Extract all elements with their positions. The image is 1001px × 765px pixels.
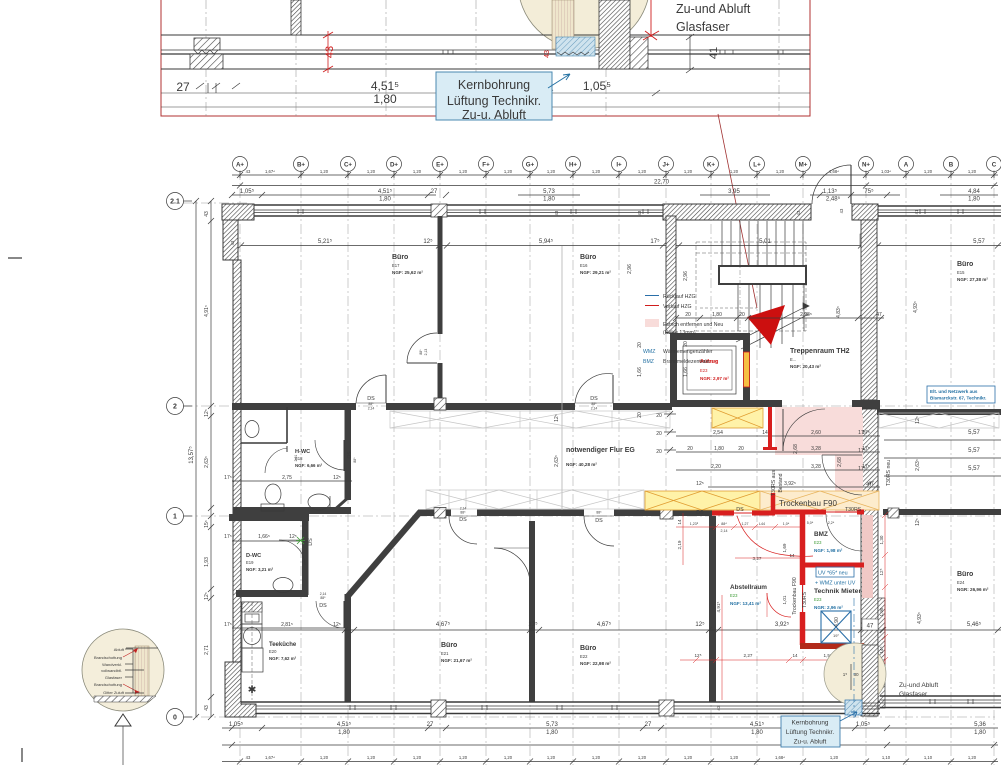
svg-text:Büro: Büro	[957, 571, 973, 578]
svg-text:DS: DS	[595, 518, 603, 524]
svg-text:17⁵: 17⁵	[650, 238, 660, 245]
svg-text:E20: E20	[269, 649, 277, 654]
svg-text:20: 20	[738, 446, 744, 452]
svg-text:5,57: 5,57	[968, 430, 980, 436]
svg-text:88⁴: 88⁴	[721, 522, 727, 526]
svg-text:17⁵: 17⁵	[224, 622, 232, 628]
svg-text:DS: DS	[696, 510, 704, 516]
svg-text:1,20: 1,20	[638, 169, 647, 174]
svg-text:88⁵: 88⁵	[368, 402, 374, 406]
svg-text:43: 43	[716, 705, 721, 711]
svg-text:1,20: 1,20	[459, 169, 468, 174]
svg-text:notwendiger Flur EG: notwendiger Flur EG	[566, 447, 635, 454]
svg-text:Gitter Zuluft: Gitter Zuluft	[103, 690, 125, 695]
svg-text:12⁵: 12⁵	[204, 592, 210, 600]
svg-text:14: 14	[677, 519, 682, 525]
svg-text:NGF: 1,98 m²: NGF: 1,98 m²	[814, 548, 843, 553]
svg-text:17⁵: 17⁵	[858, 448, 866, 454]
svg-text:1,20: 1,20	[320, 755, 329, 760]
svg-text:Bestand: Bestand	[778, 473, 784, 492]
svg-text:1,80: 1,80	[373, 92, 397, 106]
svg-text:E24: E24	[957, 580, 965, 585]
svg-text:Büro: Büro	[392, 254, 408, 261]
svg-text:12⁵: 12⁵	[915, 518, 921, 526]
svg-text:1,80: 1,80	[546, 730, 558, 736]
svg-text:1,05⁵: 1,05⁵	[229, 721, 244, 728]
svg-text:C: C	[992, 162, 997, 169]
svg-text:0: 0	[173, 715, 177, 722]
svg-text:2,63⁵: 2,63⁵	[915, 459, 921, 471]
svg-text:3,92⁵: 3,92⁵	[775, 621, 790, 628]
svg-text:vollwandbtl.: vollwandbtl.	[101, 668, 122, 673]
svg-text:14: 14	[789, 553, 795, 558]
svg-text:2,14: 2,14	[460, 507, 467, 511]
svg-text:1,80: 1,80	[379, 197, 391, 203]
svg-text:1,68⁴: 1,68⁴	[775, 755, 785, 760]
svg-text:2,54: 2,54	[713, 430, 723, 436]
svg-text:1,80: 1,80	[714, 446, 724, 452]
svg-text:1,67⁴: 1,67⁴	[265, 169, 275, 174]
svg-text:Vorlauf HZG: Vorlauf HZG	[663, 304, 692, 310]
svg-text:NGF: 21,67 m²: NGF: 21,67 m²	[441, 658, 472, 663]
svg-text:DS: DS	[319, 603, 327, 609]
svg-text:47: 47	[867, 624, 874, 630]
svg-text:2,60: 2,60	[811, 430, 821, 436]
svg-text:47: 47	[866, 482, 872, 488]
svg-text:N+: N+	[862, 162, 870, 169]
svg-text:H-WC: H-WC	[295, 449, 310, 455]
svg-text:J+: J+	[662, 162, 669, 169]
svg-text:20: 20	[637, 412, 643, 418]
svg-text:(Hülse 13mm): (Hülse 13mm)	[663, 330, 696, 336]
svg-text:20: 20	[656, 449, 662, 455]
svg-text:Brandmeldezentrale: Brandmeldezentrale	[663, 359, 710, 365]
svg-text:2,75: 2,75	[282, 475, 292, 481]
svg-text:12⁵: 12⁵	[554, 414, 560, 422]
svg-text:27: 27	[431, 189, 438, 195]
svg-text:4,84: 4,84	[968, 189, 980, 195]
svg-text:NGF: 22,98 m²: NGF: 22,98 m²	[580, 661, 611, 666]
svg-text:A+: A+	[236, 162, 244, 169]
svg-text:43: 43	[230, 240, 235, 245]
svg-text:4,91⁵: 4,91⁵	[204, 305, 210, 317]
svg-text:1,0⁴: 1,0⁴	[783, 522, 790, 526]
svg-text:Büro: Büro	[580, 254, 596, 261]
svg-text:2,19: 2,19	[677, 540, 682, 549]
svg-text:1,20: 1,20	[830, 755, 839, 760]
svg-text:12⁵: 12⁵	[528, 621, 538, 628]
svg-text:2,14: 2,14	[368, 407, 375, 411]
svg-text:1,80: 1,80	[338, 730, 350, 736]
svg-text:43: 43	[839, 208, 844, 213]
svg-text:43: 43	[204, 705, 210, 711]
svg-text:14: 14	[792, 653, 798, 658]
svg-text:✱: ✱	[248, 684, 257, 696]
svg-text:BMZ: BMZ	[814, 531, 828, 538]
svg-text:3,28: 3,28	[811, 446, 821, 452]
svg-text:Technik Mieter: Technik Mieter	[814, 588, 861, 595]
svg-text:E+: E+	[436, 162, 444, 169]
svg-text:1,93: 1,93	[204, 557, 210, 567]
svg-text:5,57: 5,57	[968, 466, 980, 472]
svg-text:1,20: 1,20	[547, 169, 556, 174]
svg-text:NGF: 6,66 m²: NGF: 6,66 m²	[295, 463, 323, 468]
svg-text:Abluft: Abluft	[114, 647, 125, 652]
svg-text:1,20: 1,20	[459, 755, 468, 760]
svg-text:1,05⁵: 1,05⁵	[240, 188, 255, 195]
svg-text:17⁵: 17⁵	[858, 466, 866, 472]
svg-text:1,80: 1,80	[974, 730, 986, 736]
svg-text:12⁵: 12⁵	[333, 622, 341, 628]
svg-text:Glasfaser: Glasfaser	[899, 691, 928, 698]
svg-text:Zu-u. Abluft: Zu-u. Abluft	[794, 739, 827, 746]
svg-text:B: B	[949, 162, 954, 169]
svg-text:88⁵: 88⁵	[353, 457, 357, 463]
svg-text:1,66: 1,66	[683, 367, 689, 377]
svg-text:2,01: 2,01	[294, 455, 298, 462]
svg-text:20: 20	[683, 341, 689, 347]
svg-text:17⁵: 17⁵	[224, 534, 232, 540]
svg-text:A: A	[904, 162, 909, 169]
svg-text:NGR: 2,96 m²: NGR: 2,96 m²	[814, 605, 843, 610]
svg-text:5,57: 5,57	[968, 448, 980, 454]
svg-text:NGF: 27,38 m²: NGF: 27,38 m²	[957, 277, 988, 282]
svg-text:3,95: 3,95	[728, 189, 740, 195]
svg-text:4,67⁵: 4,67⁵	[597, 621, 612, 628]
svg-text:1,20: 1,20	[592, 169, 601, 174]
svg-text:Rücklauf HZG: Rücklauf HZG	[663, 294, 696, 300]
svg-text:WMZ: WMZ	[643, 349, 655, 355]
svg-text:3,27: 3,27	[753, 556, 762, 561]
svg-text:27: 27	[427, 722, 434, 728]
svg-text:DS: DS	[736, 507, 744, 513]
svg-text:E22: E22	[580, 654, 588, 659]
svg-text:T30RS: T30RS	[802, 591, 808, 608]
svg-text:12⁵: 12⁵	[915, 416, 921, 424]
svg-text:27: 27	[176, 80, 190, 94]
svg-text:1⁵: 1⁵	[843, 672, 848, 677]
svg-text:41: 41	[708, 47, 720, 59]
svg-text:Teeküche: Teeküche	[269, 642, 297, 648]
svg-text:1,01: 1,01	[782, 595, 787, 604]
svg-text:2,20: 2,20	[711, 464, 721, 470]
svg-text:20: 20	[656, 413, 662, 419]
svg-text:K+: K+	[707, 162, 715, 169]
svg-text:43: 43	[554, 210, 559, 215]
svg-text:E21: E21	[441, 651, 449, 656]
svg-text:Estrich entfernen und Neu: Estrich entfernen und Neu	[663, 322, 723, 328]
svg-text:1,80: 1,80	[751, 730, 763, 736]
svg-text:1,20: 1,20	[367, 169, 376, 174]
svg-text:Lüftung Technikr.: Lüftung Technikr.	[786, 729, 834, 736]
svg-text:4,90: 4,90	[834, 617, 840, 627]
svg-text:Elt. und Netzwerk aus: Elt. und Netzwerk aus	[930, 389, 978, 394]
svg-text:Wandverkl.: Wandverkl.	[102, 662, 122, 667]
svg-text:43: 43	[544, 50, 551, 58]
svg-text:1,20: 1,20	[730, 169, 739, 174]
svg-text:5,36: 5,36	[974, 722, 986, 728]
svg-text:12⁵: 12⁵	[696, 481, 704, 487]
svg-text:E19: E19	[246, 560, 254, 565]
svg-text:B+: B+	[297, 162, 305, 169]
svg-text:2,98⁵: 2,98⁵	[800, 312, 812, 318]
svg-text:1,23⁵: 1,23⁵	[690, 522, 699, 526]
svg-text:1,20: 1,20	[968, 169, 977, 174]
svg-text:NGF: 20,43 m²: NGF: 20,43 m²	[790, 364, 821, 369]
svg-text:14⁵: 14⁵	[879, 646, 884, 653]
svg-text:88⁵: 88⁵	[596, 511, 602, 515]
svg-text:1,80: 1,80	[543, 197, 555, 203]
svg-text:20: 20	[656, 431, 662, 437]
svg-text:Brandschottung: Brandschottung	[94, 682, 122, 687]
svg-text:17⁵: 17⁵	[224, 475, 232, 481]
svg-text:1: 1	[173, 514, 177, 521]
svg-text:12⁵: 12⁵	[695, 621, 705, 628]
svg-text:1,10: 1,10	[882, 755, 891, 760]
svg-text:2,96: 2,96	[627, 264, 633, 274]
svg-text:4,51⁵: 4,51⁵	[378, 188, 393, 195]
svg-text:Brandschottung: Brandschottung	[94, 655, 122, 660]
svg-text:Wärmemengenzähler: Wärmemengenzähler	[663, 349, 713, 355]
svg-text:22,70: 22,70	[654, 180, 670, 186]
svg-text:T30RS aus: T30RS aus	[771, 470, 777, 496]
svg-text:1,20: 1,20	[592, 755, 601, 760]
svg-text:G+: G+	[526, 162, 535, 169]
svg-text:2,48⁵: 2,48⁵	[826, 196, 841, 203]
svg-text:12⁵: 12⁵	[333, 475, 341, 481]
svg-text:Treppenraum TH2: Treppenraum TH2	[790, 348, 850, 355]
svg-text:1,20: 1,20	[504, 169, 513, 174]
svg-text:1,20: 1,20	[638, 755, 647, 760]
svg-text:2,96: 2,96	[683, 271, 689, 281]
svg-text:E15: E15	[957, 270, 965, 275]
svg-text:1,20: 1,20	[547, 755, 556, 760]
svg-text:1,20: 1,20	[730, 755, 739, 760]
svg-text:+ WMZ unter UV: + WMZ unter UV	[815, 581, 856, 587]
svg-text:88⁵: 88⁵	[320, 596, 326, 600]
svg-text:4,91⁵: 4,91⁵	[716, 601, 721, 612]
svg-text:1,20: 1,20	[413, 169, 422, 174]
svg-text:2,68: 2,68	[793, 444, 799, 454]
svg-text:E23: E23	[700, 368, 708, 373]
svg-text:1,20: 1,20	[504, 755, 513, 760]
svg-text:19°: 19°	[833, 633, 839, 638]
svg-text:Glasfaser: Glasfaser	[105, 675, 123, 680]
svg-text:DS: DS	[308, 538, 314, 546]
svg-text:NGF: 7,62 m²: NGF: 7,62 m²	[269, 656, 297, 661]
svg-text:4,83⁵: 4,83⁵	[836, 306, 842, 318]
svg-text:E23: E23	[814, 597, 822, 602]
svg-text:88⁵: 88⁵	[419, 349, 423, 355]
svg-text:43: 43	[246, 169, 251, 174]
svg-text:1,20: 1,20	[924, 169, 933, 174]
svg-text:DS: DS	[459, 517, 467, 523]
svg-text:2,63⁵: 2,63⁵	[204, 456, 210, 468]
svg-text:Trockenbau F90: Trockenbau F90	[792, 577, 798, 615]
svg-text:41: 41	[914, 209, 919, 214]
svg-text:1,20: 1,20	[413, 755, 422, 760]
svg-text:NGF: 13,41 m²: NGF: 13,41 m²	[730, 601, 761, 606]
svg-text:1,67⁴: 1,67⁴	[265, 755, 275, 760]
svg-text:5,46⁵: 5,46⁵	[967, 621, 982, 628]
svg-text:43: 43	[246, 755, 251, 760]
svg-text:88⁵: 88⁵	[591, 402, 597, 406]
svg-text:NGF: 3,21 m²: NGF: 3,21 m²	[246, 567, 274, 572]
svg-text:12⁵: 12⁵	[423, 238, 433, 245]
svg-text:2,2⁴: 2,2⁴	[828, 521, 835, 525]
svg-text:BMZ: BMZ	[643, 359, 654, 365]
svg-text:4,93⁵: 4,93⁵	[917, 612, 923, 624]
svg-text:2,81⁵: 2,81⁵	[281, 622, 293, 628]
svg-text:1,95: 1,95	[879, 607, 884, 616]
svg-text:1,66⁵: 1,66⁵	[258, 534, 270, 540]
svg-text:Kernbohrung: Kernbohrung	[458, 78, 530, 92]
svg-text:2,68: 2,68	[837, 457, 843, 467]
svg-text:5,0⁴: 5,0⁴	[807, 521, 814, 525]
svg-text:E16: E16	[580, 263, 588, 268]
svg-text:2,13: 2,13	[424, 349, 428, 356]
svg-text:NGR: 26,96 m²: NGR: 26,96 m²	[957, 587, 989, 592]
svg-text:20: 20	[687, 446, 693, 452]
svg-text:4,93⁵: 4,93⁵	[913, 301, 919, 313]
svg-text:E23: E23	[730, 593, 738, 598]
svg-text:17⁵: 17⁵	[858, 430, 866, 436]
svg-text:I+: I+	[616, 162, 622, 169]
svg-text:43: 43	[796, 210, 801, 215]
svg-text:2,14: 2,14	[591, 407, 598, 411]
svg-text:1,66: 1,66	[637, 367, 643, 377]
svg-text:15⁵: 15⁵	[204, 520, 210, 528]
svg-text:2,14: 2,14	[721, 529, 728, 533]
svg-text:2,27: 2,27	[744, 653, 753, 658]
svg-text:NGF: 29,21 m²: NGF: 29,21 m²	[580, 270, 611, 275]
svg-text:1,69: 1,69	[782, 543, 787, 552]
svg-text:1,20: 1,20	[684, 169, 693, 174]
svg-text:4,51⁵: 4,51⁵	[750, 721, 765, 728]
svg-text:E17: E17	[392, 263, 400, 268]
svg-text:E...: E...	[790, 357, 796, 362]
svg-text:2,71: 2,71	[204, 645, 210, 655]
svg-text:88⁵: 88⁵	[460, 511, 466, 515]
svg-text:43: 43	[204, 211, 210, 217]
svg-text:Lüftung Technikr.: Lüftung Technikr.	[447, 94, 541, 108]
svg-text:5,73: 5,73	[546, 722, 558, 728]
svg-text:4,51⁵: 4,51⁵	[337, 721, 352, 728]
svg-text:F+: F+	[482, 162, 490, 169]
svg-text:Zu-u. Abluft: Zu-u. Abluft	[462, 108, 526, 122]
svg-text:2.1: 2.1	[170, 199, 180, 206]
svg-text:M+: M+	[799, 162, 808, 169]
svg-text:5,73: 5,73	[543, 189, 555, 195]
svg-text:2,63⁵: 2,63⁵	[554, 455, 560, 467]
svg-text:NGF: 40,28 m²: NGF: 40,28 m²	[566, 462, 597, 467]
svg-text:Büro: Büro	[580, 645, 596, 652]
svg-text:2,14: 2,14	[320, 592, 327, 596]
svg-text:12⁵: 12⁵	[289, 534, 297, 540]
svg-text:1,05⁵: 1,05⁵	[856, 721, 871, 728]
svg-text:T30RS neu: T30RS neu	[886, 460, 892, 486]
svg-text:1,03⁴: 1,03⁴	[881, 169, 891, 174]
svg-text:43: 43	[637, 210, 642, 215]
svg-text:E23: E23	[814, 540, 822, 545]
svg-text:Büro: Büro	[441, 642, 457, 649]
svg-text:1,80: 1,80	[968, 197, 980, 203]
svg-text:1,10: 1,10	[924, 755, 933, 760]
svg-text:Büro: Büro	[957, 261, 973, 268]
svg-text:4,67⁵: 4,67⁵	[436, 621, 451, 628]
svg-text:12⁵: 12⁵	[694, 653, 701, 658]
svg-text:1,20: 1,20	[684, 755, 693, 760]
svg-text:1,30: 1,30	[879, 535, 884, 544]
svg-text:Kernbohrung: Kernbohrung	[792, 720, 829, 727]
svg-text:L+: L+	[753, 162, 761, 169]
svg-text:L44: L44	[759, 522, 765, 526]
svg-text:1,68⁴: 1,68⁴	[829, 169, 839, 174]
svg-text:1,20: 1,20	[367, 755, 376, 760]
svg-text:75⁵: 75⁵	[864, 188, 874, 195]
svg-text:5,21⁵: 5,21⁵	[318, 238, 333, 245]
svg-text:3,92⁵: 3,92⁵	[784, 481, 796, 487]
svg-text:D+: D+	[390, 162, 398, 169]
svg-text:1,27: 1,27	[742, 522, 749, 526]
svg-text:12⁵: 12⁵	[879, 568, 884, 575]
svg-text:Zu-und Abluft: Zu-und Abluft	[676, 2, 751, 16]
svg-text:H+: H+	[569, 162, 577, 169]
svg-text:Zu-und Abluft: Zu-und Abluft	[899, 682, 938, 689]
svg-text:14: 14	[762, 430, 768, 436]
svg-text:1,20: 1,20	[320, 169, 329, 174]
svg-text:5,57: 5,57	[973, 239, 985, 245]
svg-text:C+: C+	[344, 162, 352, 169]
svg-text:3,28: 3,28	[811, 464, 821, 470]
svg-text:4,51⁵: 4,51⁵	[371, 79, 399, 93]
svg-text:12⁵: 12⁵	[204, 409, 210, 417]
svg-text:Bismarckstr. 67, Technikr.: Bismarckstr. 67, Technikr.	[930, 396, 986, 401]
svg-text:Glasfaser: Glasfaser	[676, 20, 730, 34]
svg-text:1,20: 1,20	[968, 755, 977, 760]
svg-text:NGR: 2,97 m²: NGR: 2,97 m²	[700, 376, 729, 381]
svg-text:43: 43	[324, 46, 336, 58]
svg-text:1,05⁵: 1,05⁵	[583, 79, 611, 93]
svg-text:1,80: 1,80	[712, 312, 722, 318]
svg-text:D-WC: D-WC	[246, 553, 261, 559]
svg-text:UV *65* neu: UV *65* neu	[818, 571, 848, 577]
svg-text:47: 47	[876, 312, 882, 318]
svg-text:1,13⁵: 1,13⁵	[823, 188, 838, 195]
svg-text:T30RS: T30RS	[845, 507, 862, 513]
svg-text:2: 2	[173, 404, 177, 411]
svg-text:13,57⁵: 13,57⁵	[188, 446, 195, 464]
svg-text:Trockenbau F90: Trockenbau F90	[779, 499, 838, 508]
svg-text:20: 20	[637, 342, 643, 348]
svg-text:5,94⁵: 5,94⁵	[539, 238, 554, 245]
svg-text:1,20: 1,20	[776, 169, 785, 174]
svg-text:20: 20	[685, 312, 691, 318]
svg-text:Abstellraum: Abstellraum	[730, 584, 767, 591]
svg-text:NGF: 25,62 m²: NGF: 25,62 m²	[392, 270, 423, 275]
